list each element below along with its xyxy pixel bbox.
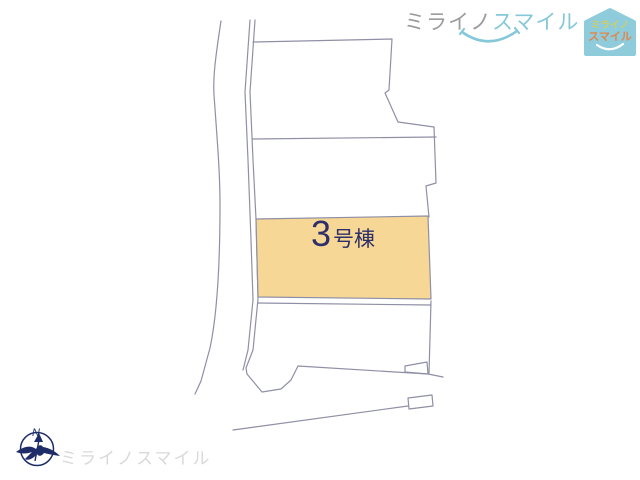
lot-top-outline: [253, 39, 434, 127]
boundary-structure-lower: [408, 395, 433, 409]
road-line-left: [195, 21, 221, 394]
lower-diagonal-line: [233, 406, 408, 430]
house-badge-line1: ミライノ: [591, 20, 629, 31]
compass-icon: N: [16, 427, 60, 466]
brand-wordmark-part1: ミライノ: [404, 11, 492, 34]
site-plan: ミライノ スマイル N: [0, 0, 640, 480]
house-badge-line2: スマイル: [588, 30, 632, 43]
lot-right-boundary-upper: [426, 127, 436, 217]
road-edge-inner: [246, 20, 443, 392]
footer-watermark: ミライノスマイル: [60, 444, 212, 469]
brand-wordmark: ミライノスマイル: [404, 6, 579, 34]
house-badge-icon: ミライノ スマイル: [586, 10, 634, 54]
lot-divider-line: [252, 137, 436, 139]
lot-right-boundary-lower: [429, 301, 431, 373]
lot-divider-line-lower: [258, 303, 431, 305]
boundary-structure-upper: [405, 362, 428, 374]
brand-wordmark-part2: スマイル: [492, 11, 579, 34]
highlighted-lot: [256, 216, 431, 299]
